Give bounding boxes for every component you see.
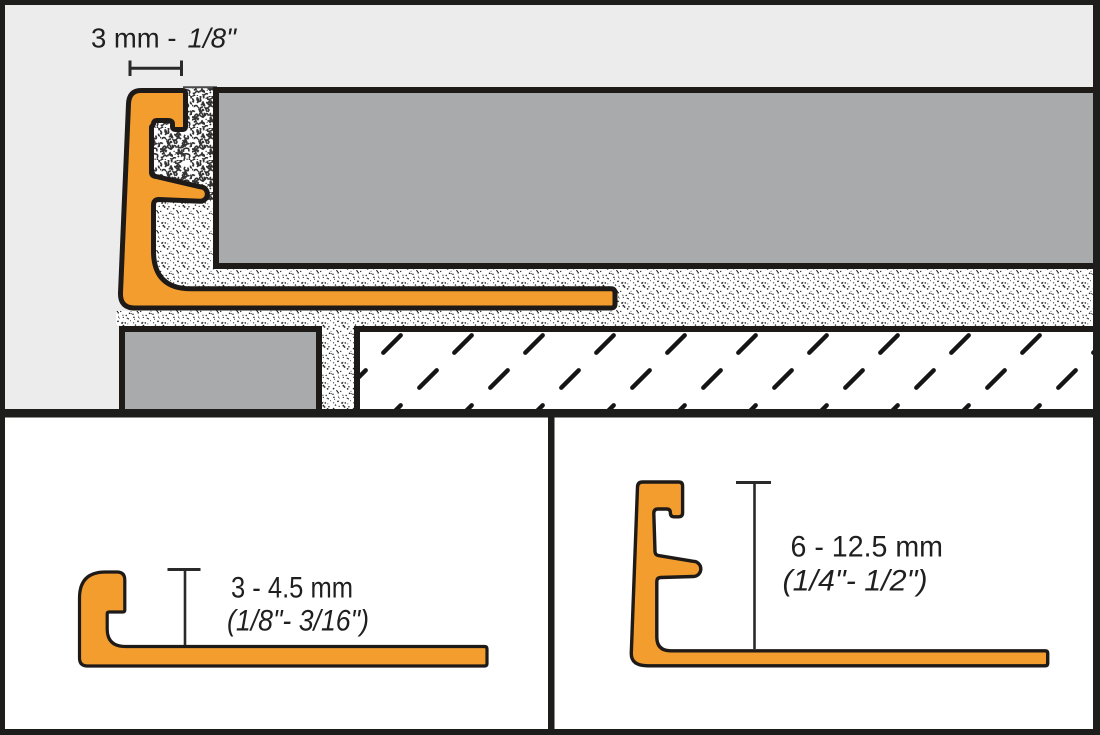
svg-text:1/8": 1/8" <box>188 23 238 54</box>
svg-text:(1/8"- 3/16"): (1/8"- 3/16") <box>227 605 369 638</box>
svg-text:3 mm -: 3 mm - <box>91 23 177 54</box>
svg-text:(1/4"- 1/2"): (1/4"- 1/2") <box>783 565 928 598</box>
svg-text:6 - 12.5 mm: 6 - 12.5 mm <box>791 531 944 564</box>
svg-text:3 - 4.5 mm: 3 - 4.5 mm <box>231 572 353 605</box>
